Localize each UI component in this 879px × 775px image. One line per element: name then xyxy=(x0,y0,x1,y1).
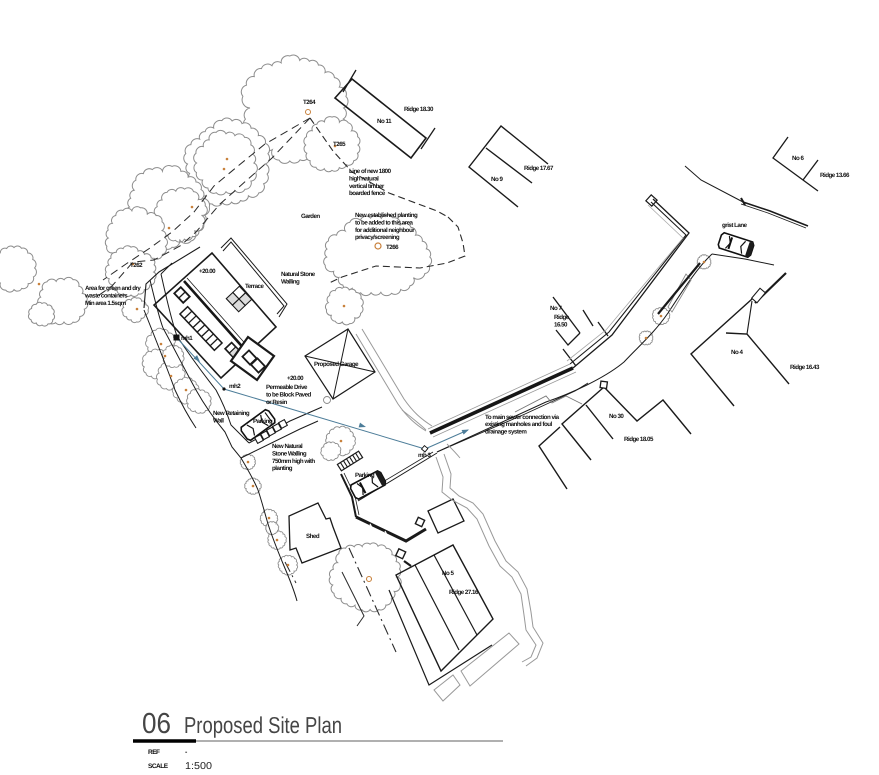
svg-text:Walling: Walling xyxy=(281,278,300,285)
svg-text:grist Lane: grist Lane xyxy=(722,222,748,229)
svg-text:T266: T266 xyxy=(386,244,399,251)
svg-text:T265: T265 xyxy=(333,141,346,148)
svg-text:Proposed Garage: Proposed Garage xyxy=(314,361,359,368)
svg-text:Shed: Shed xyxy=(306,533,320,540)
svg-text:New established planting: New established planting xyxy=(355,212,418,219)
svg-text:750mm high with: 750mm high with xyxy=(272,458,315,465)
svg-text:Terrace: Terrace xyxy=(245,283,264,290)
svg-text:Parking: Parking xyxy=(355,472,375,479)
svg-text:Ridge 17.67: Ridge 17.67 xyxy=(524,165,554,172)
svg-text:New Retaining: New Retaining xyxy=(213,410,250,417)
svg-text:To main sewer connection via: To main sewer connection via xyxy=(485,414,560,421)
svg-text:+20.00: +20.00 xyxy=(199,268,216,275)
svg-text:No 30: No 30 xyxy=(609,413,624,420)
svg-text:Ridge 16.43: Ridge 16.43 xyxy=(790,364,820,371)
svg-text:Permeable Drive: Permeable Drive xyxy=(266,384,308,391)
svg-text:mh1: mh1 xyxy=(181,335,193,342)
svg-text:mh2: mh2 xyxy=(229,383,241,390)
svg-text:Area for green and dry: Area for green and dry xyxy=(85,285,141,292)
svg-text:waste containers: waste containers xyxy=(84,292,128,299)
svg-text:Ridge 13.66: Ridge 13.66 xyxy=(820,172,850,179)
svg-text:16.50: 16.50 xyxy=(554,321,568,328)
svg-text:-: - xyxy=(185,749,188,756)
svg-text:existing manholes and foul: existing manholes and foul xyxy=(485,421,553,428)
svg-text:for additional neighbour: for additional neighbour xyxy=(355,227,415,234)
svg-text:Parking: Parking xyxy=(253,418,273,425)
svg-text:SCALE: SCALE xyxy=(148,763,169,770)
svg-text:REF: REF xyxy=(148,749,160,756)
svg-text:Stone Walling: Stone Walling xyxy=(272,450,307,457)
svg-text:New Natural: New Natural xyxy=(272,443,303,450)
svg-text:Ridge 18.30: Ridge 18.30 xyxy=(404,106,434,113)
svg-text:No 11: No 11 xyxy=(377,118,392,125)
svg-text:to be Block Paved: to be Block Paved xyxy=(266,391,312,398)
svg-text:Proposed Site Plan: Proposed Site Plan xyxy=(184,712,342,738)
svg-text:Ridge 18.05: Ridge 18.05 xyxy=(624,436,654,443)
svg-text:No 9: No 9 xyxy=(491,176,503,183)
svg-text:Wall: Wall xyxy=(213,417,224,424)
svg-text:boarded fence: boarded fence xyxy=(349,190,386,197)
svg-text:1:500: 1:500 xyxy=(185,761,212,772)
svg-text:T264: T264 xyxy=(303,99,316,106)
svg-text:06: 06 xyxy=(142,708,171,740)
svg-text:drainage system: drainage system xyxy=(485,428,527,435)
svg-text:+20.00: +20.00 xyxy=(287,375,304,382)
svg-text:No 6: No 6 xyxy=(792,155,804,162)
svg-text:or Resin: or Resin xyxy=(266,399,287,406)
svg-text:Min area 1.5sqm: Min area 1.5sqm xyxy=(85,300,127,307)
svg-text:Line of new 1800: Line of new 1800 xyxy=(349,168,392,175)
svg-text:No 5: No 5 xyxy=(442,570,454,577)
svg-text:No 4: No 4 xyxy=(731,349,743,356)
svg-text:planting: planting xyxy=(272,465,293,472)
svg-text:Ridge: Ridge xyxy=(554,314,570,321)
svg-text:privacy/screening: privacy/screening xyxy=(355,234,400,241)
svg-text:Ridge 27.16: Ridge 27.16 xyxy=(449,589,479,596)
svg-text:Garden: Garden xyxy=(301,213,320,220)
svg-text:No 7: No 7 xyxy=(550,305,562,312)
svg-text:high natural: high natural xyxy=(349,175,379,182)
svg-text:T262: T262 xyxy=(130,262,143,269)
svg-text:Natural Stone: Natural Stone xyxy=(281,271,316,278)
svg-text:mh 3: mh 3 xyxy=(418,452,432,459)
svg-text:to be added to this area: to be added to this area xyxy=(355,219,414,226)
svg-text:vertical timber: vertical timber xyxy=(349,183,385,190)
